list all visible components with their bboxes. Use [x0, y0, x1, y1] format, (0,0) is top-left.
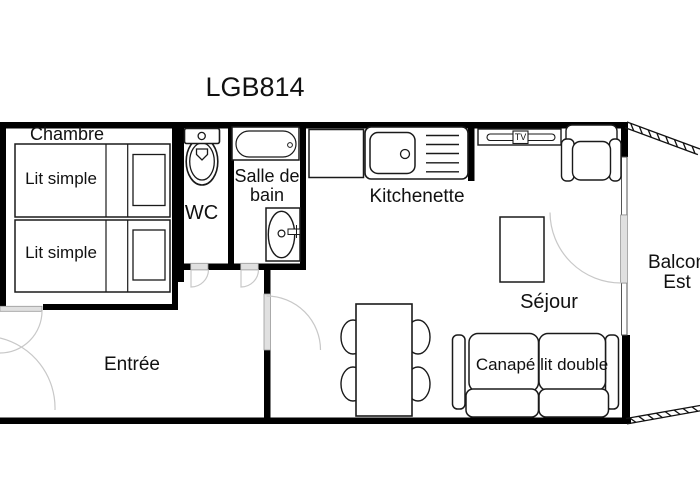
- armchair-seat: [573, 142, 611, 181]
- wall-sejour-vertical-bottom: [264, 350, 271, 420]
- bed1-label: Lit simple: [13, 170, 109, 188]
- sejour-side-table: [500, 217, 544, 282]
- wc-door-arc: [191, 270, 209, 288]
- room-label-salle-de-bain: Salle de bain: [227, 167, 307, 205]
- dining-table: [356, 304, 412, 416]
- armchair-right-arm: [610, 139, 622, 181]
- balcony-door-leaf: [621, 215, 628, 283]
- chambre-door-leaf: [0, 306, 42, 311]
- armchair: [562, 125, 622, 181]
- wall-left: [0, 122, 6, 310]
- tv-label: TV: [513, 131, 528, 144]
- kitchen-counter-square: [309, 130, 364, 178]
- sink-faucet: [288, 229, 300, 235]
- sofa-label: Canapé lit double: [463, 356, 621, 374]
- bed1-pillow: [133, 155, 165, 206]
- balcon-line1: Balcon: [648, 252, 700, 273]
- salle-de-bain-line1: Salle de: [234, 166, 299, 186]
- wall-right-bottom: [622, 335, 630, 422]
- bath-door-opening: [241, 263, 259, 270]
- room-label-kitchenette: Kitchenette: [352, 187, 482, 207]
- wall-bottom: [0, 418, 631, 425]
- window-lower: [622, 283, 628, 335]
- kitchen-sink-drain: [401, 150, 410, 159]
- bathtub-drain: [288, 143, 293, 148]
- sink-drain: [278, 230, 285, 237]
- bathtub: [232, 127, 299, 160]
- window-upper: [622, 157, 628, 215]
- dining-set: [341, 304, 430, 416]
- sofa-bed: [453, 334, 619, 418]
- room-label-sejour: Séjour: [499, 292, 599, 313]
- kitchen-sink-unit: [365, 127, 468, 179]
- wall-right-top: [621, 122, 628, 157]
- toilet: [185, 129, 220, 186]
- wall-wc-left: [178, 122, 184, 282]
- room-label-entree: Entrée: [82, 355, 182, 375]
- salle-de-bain-line2: bain: [250, 185, 284, 205]
- bathroom-sink: [266, 208, 300, 261]
- wall-sejour-vertical-top: [264, 269, 271, 294]
- balcony-railing-bottom: [626, 406, 700, 424]
- toilet-tank-button: [198, 132, 205, 139]
- balcony-glazing: [621, 157, 628, 335]
- sejour-door-leaf: [264, 294, 271, 350]
- floorplan-page: LGB814 Chambre Lit simple Lit simple WC …: [0, 0, 700, 500]
- room-label-wc: WC: [171, 203, 232, 224]
- sofa-seat-cushion-left: [466, 389, 539, 417]
- entrance-door-arc: [0, 338, 55, 410]
- sejour-door-arc: [267, 296, 321, 350]
- balcony-door-arc: [550, 213, 621, 284]
- room-label-balcon: Balcon Est: [643, 253, 700, 293]
- room-label-chambre: Chambre: [19, 125, 115, 144]
- bath-door-arc: [241, 270, 259, 288]
- kitchen-counter: [309, 130, 364, 178]
- wall-chambre-bottom: [43, 304, 178, 310]
- wall-kitchen-stub: [468, 128, 475, 181]
- balcony-railing-top: [625, 122, 700, 155]
- plan-title: LGB814: [155, 73, 355, 102]
- sofa-seat-cushion-right: [539, 389, 609, 417]
- bed2-pillow: [133, 230, 165, 280]
- bathtub-inner: [236, 131, 296, 157]
- balcon-line2: Est: [663, 272, 690, 293]
- bed2-label: Lit simple: [13, 244, 109, 262]
- wc-door-opening: [191, 263, 208, 270]
